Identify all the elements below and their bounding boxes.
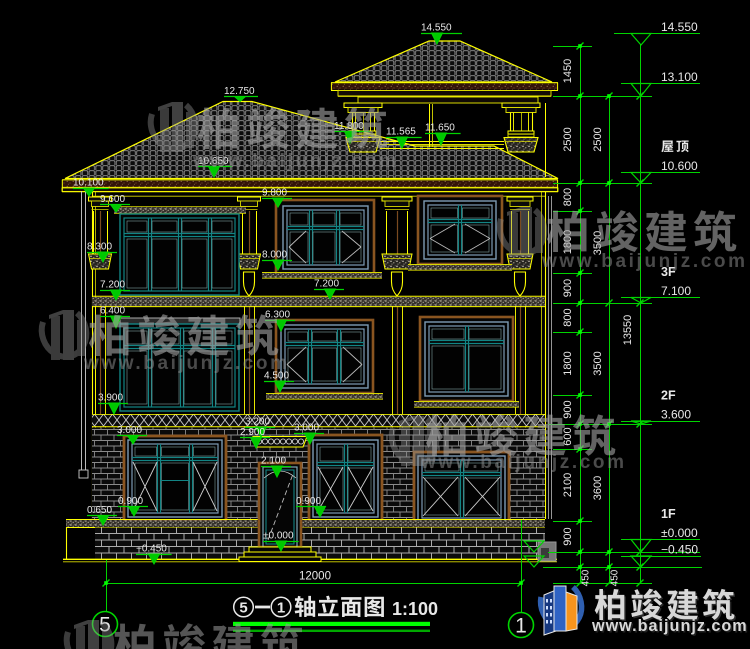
svg-text:12.750: 12.750 — [224, 86, 255, 97]
svg-text:2100: 2100 — [562, 473, 574, 497]
svg-text:7.200: 7.200 — [100, 280, 125, 291]
svg-text:3.200: 3.200 — [245, 417, 270, 428]
svg-text:8.000: 8.000 — [262, 250, 287, 261]
svg-text:±0.000: ±0.000 — [263, 531, 294, 542]
svg-text:−0.450: −0.450 — [136, 544, 167, 555]
svg-text:www.baijunjz.com: www.baijunjz.com — [192, 151, 399, 172]
svg-text:10.600: 10.600 — [661, 159, 698, 173]
svg-text:www.baijunjz.com: www.baijunjz.com — [83, 353, 290, 374]
svg-text:900: 900 — [562, 527, 574, 545]
svg-text:2.900: 2.900 — [240, 427, 265, 438]
svg-text:3.000: 3.000 — [294, 423, 319, 434]
svg-text:5: 5 — [239, 600, 247, 617]
svg-text:1450: 1450 — [562, 59, 574, 83]
svg-text:−0.450: −0.450 — [661, 543, 698, 557]
svg-text:8.300: 8.300 — [87, 242, 112, 253]
svg-text:9.800: 9.800 — [262, 188, 287, 199]
svg-text:www.baijunjz.com: www.baijunjz.com — [541, 251, 748, 272]
svg-text:0.900: 0.900 — [118, 496, 143, 507]
svg-text:800: 800 — [562, 308, 574, 326]
svg-text:14.550: 14.550 — [421, 23, 452, 34]
svg-text:6.400: 6.400 — [100, 306, 125, 317]
svg-text:13550: 13550 — [622, 315, 634, 346]
svg-text:13.100: 13.100 — [661, 70, 698, 84]
svg-text:11.650: 11.650 — [425, 123, 455, 134]
svg-text:www.baijunjz.com: www.baijunjz.com — [591, 617, 748, 635]
svg-text:1: 1 — [515, 615, 527, 638]
svg-text:1F: 1F — [661, 507, 676, 521]
svg-text:2.100: 2.100 — [261, 456, 286, 467]
svg-text:10.100: 10.100 — [73, 178, 104, 189]
svg-text:900: 900 — [562, 279, 574, 297]
svg-text:www.baijunjz.com: www.baijunjz.com — [420, 452, 627, 473]
svg-text:12000: 12000 — [299, 571, 331, 583]
svg-text:1800: 1800 — [562, 351, 574, 375]
svg-text:450: 450 — [581, 569, 592, 586]
svg-text:3.900: 3.900 — [98, 393, 123, 404]
svg-text:11.565: 11.565 — [386, 127, 416, 138]
svg-text:3.600: 3.600 — [661, 408, 691, 422]
svg-text:0.650: 0.650 — [87, 505, 112, 516]
svg-text:3500: 3500 — [592, 351, 604, 375]
svg-text:7.100: 7.100 — [661, 284, 691, 298]
svg-text:2500: 2500 — [592, 127, 604, 151]
svg-text:900: 900 — [562, 400, 574, 418]
svg-text:7.200: 7.200 — [314, 279, 339, 290]
svg-text:9.600: 9.600 — [100, 194, 125, 205]
svg-text:450: 450 — [610, 569, 621, 586]
svg-text:2F: 2F — [661, 389, 676, 403]
svg-text:3.000: 3.000 — [117, 425, 142, 436]
svg-text:2500: 2500 — [562, 127, 574, 151]
svg-text:14.550: 14.550 — [661, 20, 698, 34]
svg-text:800: 800 — [562, 188, 574, 206]
svg-text:3600: 3600 — [592, 476, 604, 500]
svg-text:±0.000: ±0.000 — [661, 526, 698, 540]
svg-text:0.900: 0.900 — [296, 496, 321, 507]
svg-text:1:100: 1:100 — [392, 599, 438, 619]
svg-text:1: 1 — [277, 600, 285, 617]
